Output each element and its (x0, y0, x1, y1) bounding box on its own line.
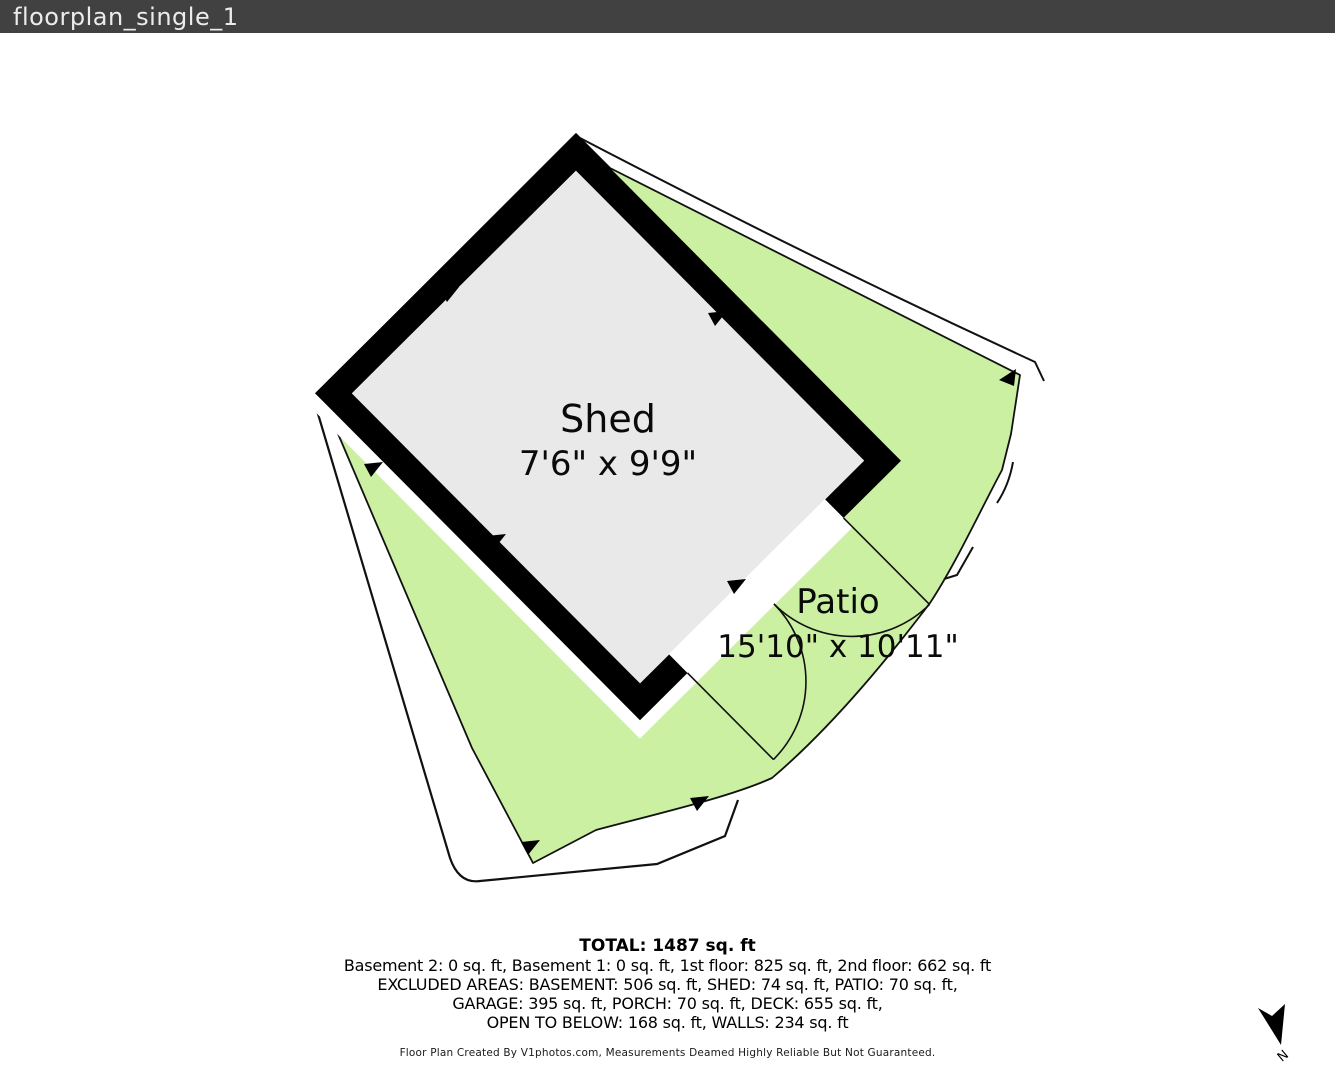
file-title: floorplan_single_1 (13, 3, 239, 31)
summary-line-3: GARAGE: 395 sq. ft, PORCH: 70 sq. ft, DE… (0, 994, 1335, 1013)
area-summary: TOTAL: 1487 sq. ft Basement 2: 0 sq. ft,… (0, 936, 1335, 1032)
patio-label: Patio (796, 582, 879, 622)
title-bar: floorplan_single_1 (0, 0, 1335, 33)
floorplan-canvas: Shed 7'6" x 9'9" Patio 15'10" x 10'11" N (0, 33, 1335, 1080)
shed-label: Shed (560, 397, 656, 441)
summary-line-4: OPEN TO BELOW: 168 sq. ft, WALLS: 234 sq… (0, 1013, 1335, 1032)
summary-line-1: Basement 2: 0 sq. ft, Basement 1: 0 sq. … (0, 956, 1335, 975)
summary-line-2: EXCLUDED AREAS: BASEMENT: 506 sq. ft, SH… (0, 975, 1335, 994)
summary-total: TOTAL: 1487 sq. ft (0, 936, 1335, 956)
disclaimer-text: Floor Plan Created By V1photos.com, Meas… (0, 1047, 1335, 1059)
patio-dimensions: 15'10" x 10'11" (717, 629, 958, 665)
shed-dimensions: 7'6" x 9'9" (519, 444, 697, 484)
